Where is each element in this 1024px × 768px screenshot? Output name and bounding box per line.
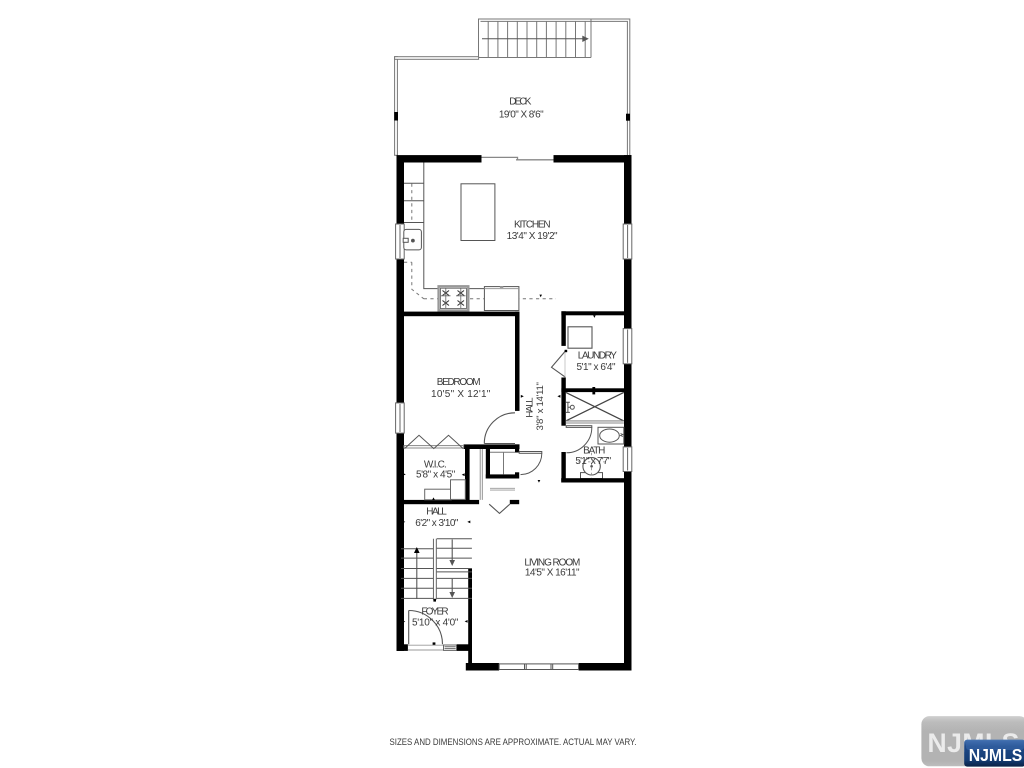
svg-text:FOYER: FOYER [421, 607, 448, 618]
svg-text:NJMLS: NJMLS [969, 745, 1023, 765]
svg-text:KITCHEN: KITCHEN [514, 220, 551, 231]
svg-text:13'4" X 19'2": 13'4" X 19'2" [507, 231, 558, 242]
svg-text:6'2" x 3'10": 6'2" x 3'10" [415, 518, 459, 529]
svg-text:DECK: DECK [509, 97, 532, 108]
svg-text:LAUNDRY: LAUNDRY [578, 350, 618, 361]
svg-text:BEDROOM: BEDROOM [437, 377, 481, 388]
svg-text:SIZES AND DIMENSIONS ARE APPRO: SIZES AND DIMENSIONS ARE APPROXIMATE. AC… [390, 737, 637, 747]
svg-text:3'8" x 14'11": 3'8" x 14'11" [535, 382, 546, 431]
svg-text:14'5" X 16'11": 14'5" X 16'11" [525, 568, 580, 579]
svg-text:HALL: HALL [426, 506, 447, 517]
svg-text:10'5" X 12'1": 10'5" X 12'1" [431, 389, 491, 400]
svg-text:5'8" x 4'5": 5'8" x 4'5" [416, 470, 456, 481]
svg-text:5'1" x 7'7": 5'1" x 7'7" [575, 456, 611, 467]
svg-text:5'10" x 4'0": 5'10" x 4'0" [412, 618, 459, 629]
svg-text:5'1" x 6'4": 5'1" x 6'4" [577, 362, 616, 373]
svg-text:19'0" X 8'6": 19'0" X 8'6" [499, 109, 544, 120]
